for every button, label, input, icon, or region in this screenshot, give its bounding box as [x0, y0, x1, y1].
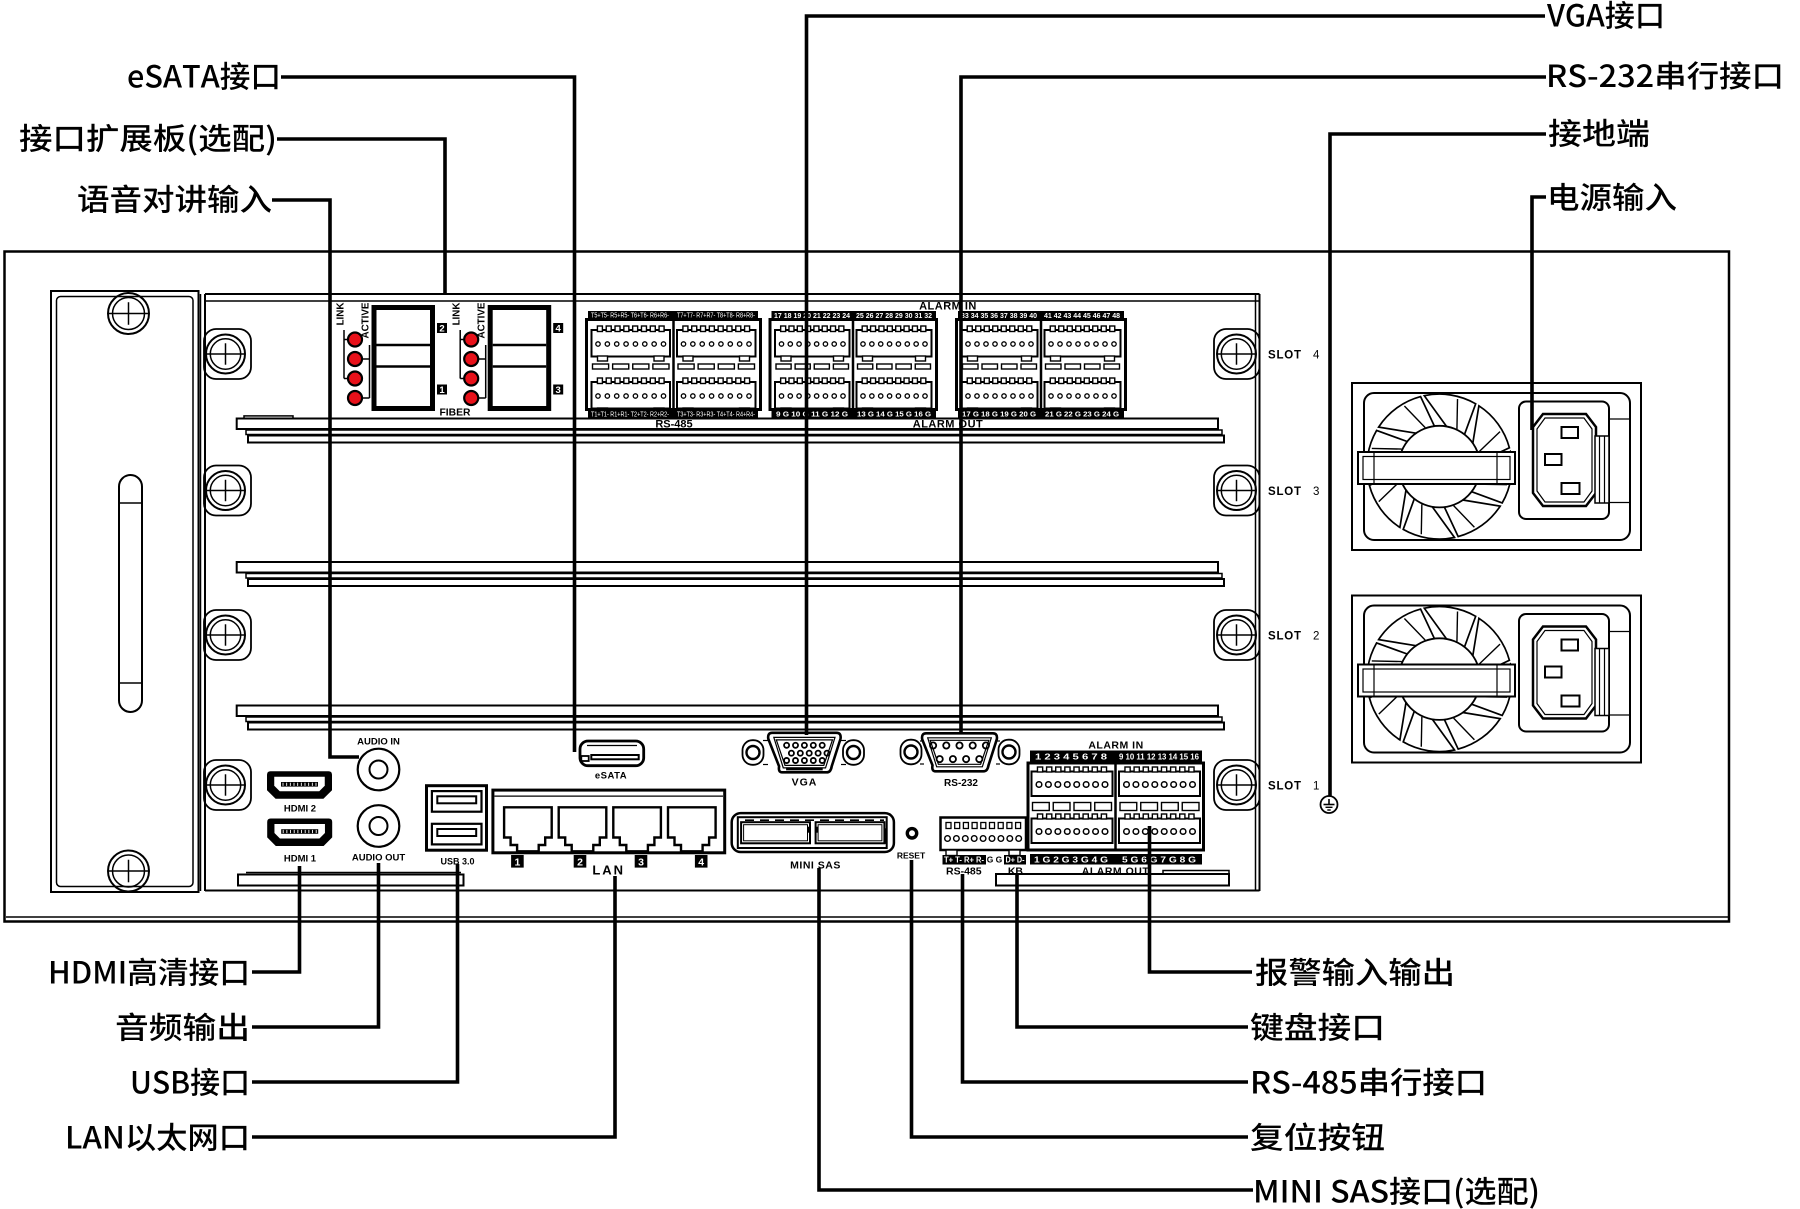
svg-text:3: 3 [1313, 486, 1319, 498]
svg-text:LINK: LINK [336, 303, 347, 326]
svg-text:1 2 3 4 5 6 7 8: 1 2 3 4 5 6 7 8 [1035, 752, 1107, 762]
svg-text:9 10 11 12 13 14 15 16: 9 10 11 12 13 14 15 16 [1119, 752, 1199, 762]
svg-text:VGA: VGA [792, 777, 818, 789]
svg-text:17 G 18 G 19 G 20 G: 17 G 18 G 19 G 20 G [962, 410, 1036, 419]
svg-text:1 G 2 G 3 G 4 G: 1 G 2 G 3 G 4 G [1034, 855, 1108, 865]
svg-text:4: 4 [1313, 350, 1320, 362]
svg-text:T1+T1- R1+R1- T2+T2- R2+R2-: T1+T1- R1+R1- T2+T2- R2+R2- [591, 412, 670, 419]
svg-text:4: 4 [698, 857, 704, 869]
svg-text:3: 3 [638, 857, 644, 869]
svg-text:T3+T3- R3+R3- T4+T4- R4+R4-: T3+T3- R3+R3- T4+T4- R4+R4- [677, 412, 756, 419]
svg-text:1: 1 [439, 385, 445, 396]
svg-text:RS-232: RS-232 [944, 778, 978, 789]
svg-text:FIBER: FIBER [440, 408, 471, 419]
svg-text:AUDIO IN: AUDIO IN [357, 737, 400, 748]
svg-text:5 G 6 G 7 G 8 G: 5 G 6 G 7 G 8 G [1122, 855, 1196, 865]
svg-text:13 G 14 G 15 G 16 G: 13 G 14 G 15 G 16 G [857, 410, 931, 419]
svg-text:2: 2 [577, 857, 583, 869]
svg-text:G G: G G [987, 855, 1003, 865]
svg-text:SLOT: SLOT [1268, 350, 1302, 362]
svg-text:SLOT: SLOT [1268, 781, 1302, 793]
svg-text:21 G 22 G 23 G 24 G: 21 G 22 G 23 G 24 G [1045, 410, 1119, 419]
svg-text:ACTIVE: ACTIVE [361, 302, 372, 338]
svg-text:MINI SAS: MINI SAS [790, 860, 841, 872]
svg-text:T+ T- R+ R-: T+ T- R+ R- [944, 856, 984, 865]
svg-text:2: 2 [439, 324, 444, 335]
svg-text:ALARM IN: ALARM IN [1088, 740, 1143, 752]
svg-text:ALARM OUT: ALARM OUT [913, 419, 984, 431]
svg-text:ALARM OUT: ALARM OUT [1082, 866, 1150, 878]
svg-text:SLOT: SLOT [1268, 631, 1302, 643]
svg-text:LAN: LAN [592, 863, 625, 878]
svg-text:HDMI 2: HDMI 2 [284, 804, 316, 815]
svg-text:SLOT: SLOT [1268, 486, 1302, 498]
svg-text:eSATA: eSATA [595, 770, 627, 781]
svg-text:ACTIVE: ACTIVE [477, 302, 488, 338]
svg-text:1: 1 [1313, 781, 1319, 793]
svg-text:AUDIO OUT: AUDIO OUT [352, 853, 406, 864]
svg-text:D+ D-: D+ D- [1006, 856, 1025, 865]
svg-text:1: 1 [514, 857, 520, 869]
svg-text:LINK: LINK [452, 303, 463, 326]
svg-text:RS-485: RS-485 [655, 419, 692, 431]
svg-text:4: 4 [556, 324, 562, 335]
svg-text:RESET: RESET [897, 851, 926, 861]
svg-text:9 G 10 G 11 G 12 G: 9 G 10 G 11 G 12 G [776, 410, 848, 419]
svg-text:HDMI 1: HDMI 1 [284, 854, 317, 865]
svg-text:2: 2 [1313, 631, 1319, 643]
svg-text:3: 3 [556, 385, 561, 396]
